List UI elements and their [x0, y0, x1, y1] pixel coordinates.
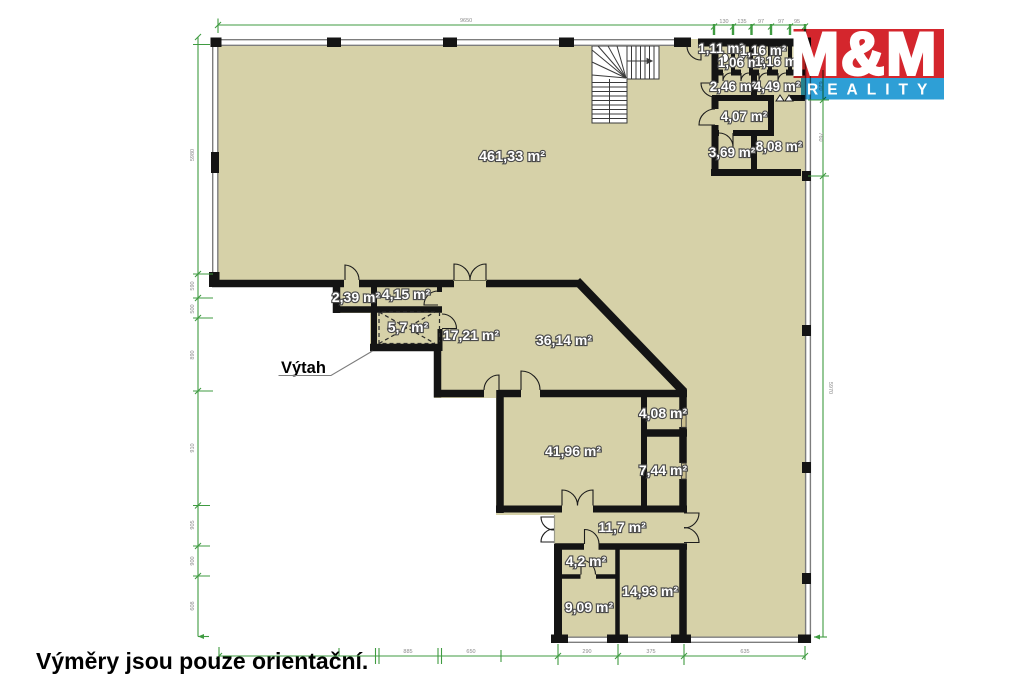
svg-text:290: 290 [582, 649, 591, 655]
svg-text:590: 590 [190, 281, 196, 290]
svg-text:5970: 5970 [827, 382, 833, 394]
svg-text:1,11 m²: 1,11 m² [698, 41, 744, 56]
svg-text:890: 890 [190, 350, 196, 359]
svg-text:9,09 m²: 9,09 m² [565, 599, 614, 615]
svg-text:4,2 m²: 4,2 m² [566, 553, 607, 569]
svg-text:461,33 m²: 461,33 m² [479, 149, 545, 165]
svg-text:M&M: M&M [789, 21, 938, 88]
svg-text:REALITY: REALITY [807, 82, 936, 99]
svg-text:500: 500 [190, 304, 196, 313]
svg-text:3,69 m²: 3,69 m² [709, 145, 756, 160]
svg-text:4,08 m²: 4,08 m² [639, 405, 688, 421]
svg-text:2,46 m²: 2,46 m² [710, 79, 757, 94]
svg-text:760: 760 [817, 132, 823, 141]
svg-text:885: 885 [403, 649, 412, 655]
svg-text:650: 650 [466, 649, 475, 655]
svg-text:910: 910 [190, 443, 196, 452]
svg-text:36,14 m²: 36,14 m² [536, 332, 592, 348]
svg-text:Výtah: Výtah [281, 359, 326, 377]
svg-text:4,49 m²: 4,49 m² [754, 79, 801, 94]
svg-text:17,21 m²: 17,21 m² [443, 327, 499, 343]
svg-text:5980: 5980 [190, 149, 196, 161]
svg-text:7,44 m²: 7,44 m² [639, 462, 688, 478]
svg-text:135: 135 [737, 19, 746, 25]
svg-text:635: 635 [740, 649, 749, 655]
svg-text:9650: 9650 [460, 18, 472, 24]
svg-text:130: 130 [719, 19, 728, 25]
svg-text:41,96 m²: 41,96 m² [545, 443, 601, 459]
svg-text:2,39 m²: 2,39 m² [332, 289, 381, 305]
svg-text:900: 900 [190, 556, 196, 565]
svg-text:5,7 m²: 5,7 m² [388, 319, 429, 335]
svg-text:14,93 m²: 14,93 m² [622, 583, 678, 599]
svg-text:Výměry jsou pouze orientační.: Výměry jsou pouze orientační. [36, 648, 368, 674]
svg-text:11,7 m²: 11,7 m² [598, 519, 646, 535]
svg-text:905: 905 [190, 520, 196, 529]
svg-text:4,15 m²: 4,15 m² [382, 286, 431, 302]
svg-text:97: 97 [778, 19, 784, 25]
svg-text:97: 97 [758, 19, 764, 25]
svg-text:375: 375 [646, 649, 655, 655]
svg-text:608: 608 [190, 601, 196, 610]
svg-text:95: 95 [794, 19, 800, 25]
svg-text:8,08 m²: 8,08 m² [756, 139, 803, 154]
svg-text:4,07 m²: 4,07 m² [721, 109, 768, 124]
